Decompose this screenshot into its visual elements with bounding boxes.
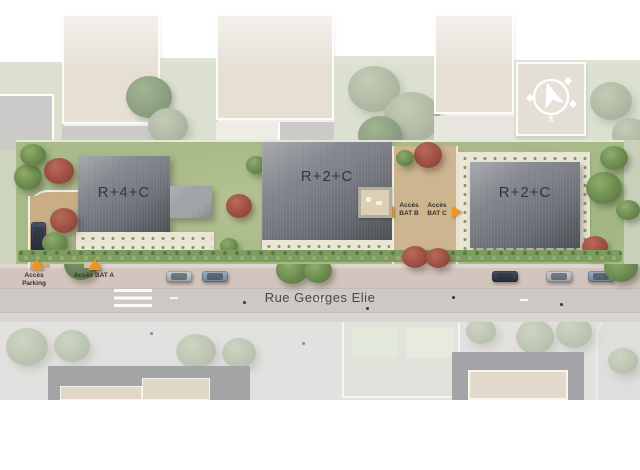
building-a-annex-roof — [170, 186, 212, 218]
tree — [54, 330, 90, 362]
context-building-roof — [60, 386, 142, 400]
context-lawn — [406, 328, 454, 358]
tree — [396, 150, 414, 166]
sidewalk-south — [0, 312, 640, 322]
pedestrian — [366, 307, 369, 310]
access-triangle-icon-parking — [30, 259, 44, 270]
tree — [590, 82, 632, 120]
building-c-label: R+2+C — [470, 184, 580, 201]
tree — [600, 146, 628, 170]
access-markers: Accès Parking Accès BAT A — [0, 254, 640, 294]
site-edge — [0, 150, 16, 264]
access-label-parking: Accès Parking — [12, 272, 56, 288]
tree — [222, 338, 256, 368]
tree — [516, 320, 554, 354]
compass-tile: S — [516, 62, 586, 136]
tree — [6, 328, 48, 366]
roof-deck — [361, 190, 389, 215]
building-a-terrace — [76, 232, 214, 252]
tree — [586, 172, 622, 204]
pedestrian — [452, 296, 455, 299]
context-lawn — [352, 328, 398, 358]
context-building-roof — [468, 370, 568, 400]
context-north: S — [0, 0, 640, 154]
road-marking — [520, 299, 528, 301]
building-c-roof: R+2+C — [470, 162, 580, 248]
context-building-roof — [142, 378, 210, 400]
tree — [616, 200, 640, 220]
access-arrow-icon-bat-c — [452, 206, 462, 218]
context-plot — [342, 320, 460, 398]
access-label-bat-c: Accès BAT C — [424, 202, 450, 218]
access-label-bat-a: Accès BAT A — [72, 272, 116, 280]
compass-south-label: S — [518, 115, 584, 124]
building-a-label: R+4+C — [78, 184, 170, 201]
tree-red — [414, 142, 442, 168]
building-a-roof: R+4+C — [78, 156, 170, 234]
deck-furniture — [366, 197, 371, 202]
access-label-bat-b: Accès BAT B — [396, 202, 422, 218]
access-triangle-icon-bat-a — [88, 259, 102, 270]
tree — [14, 164, 42, 190]
tree — [20, 144, 46, 166]
tree — [608, 348, 638, 374]
building-b-label: R+2+C — [262, 168, 392, 185]
tree — [176, 334, 216, 368]
pedestrian — [150, 332, 153, 335]
site-plan-rendering: S — [0, 0, 640, 470]
pedestrian — [302, 342, 305, 345]
project-site: R+4+C R+2+C R+2+C — [0, 138, 640, 266]
pedestrian — [560, 303, 563, 306]
tree-red — [44, 158, 74, 184]
context-building — [216, 14, 334, 120]
deck-furniture — [376, 201, 382, 205]
tree-red — [50, 208, 78, 233]
context-south — [0, 312, 640, 400]
tree-red — [226, 194, 252, 218]
context-building — [434, 14, 514, 114]
road-marking — [170, 297, 178, 299]
building-b-roof-terrace — [358, 187, 392, 218]
